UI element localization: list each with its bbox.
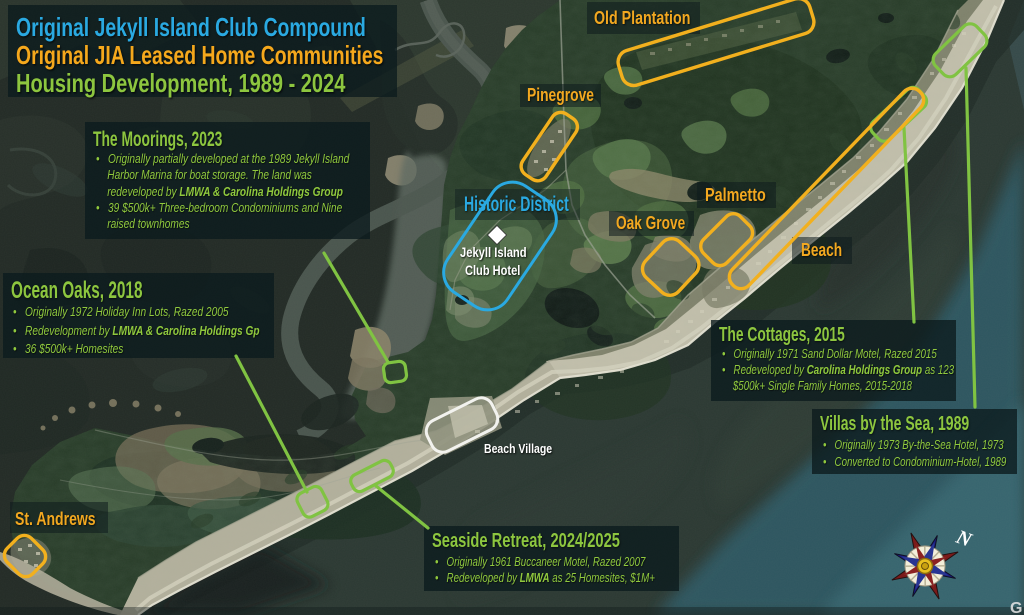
svg-text:G: G <box>1010 600 1022 615</box>
svg-text:N: N <box>952 526 975 552</box>
